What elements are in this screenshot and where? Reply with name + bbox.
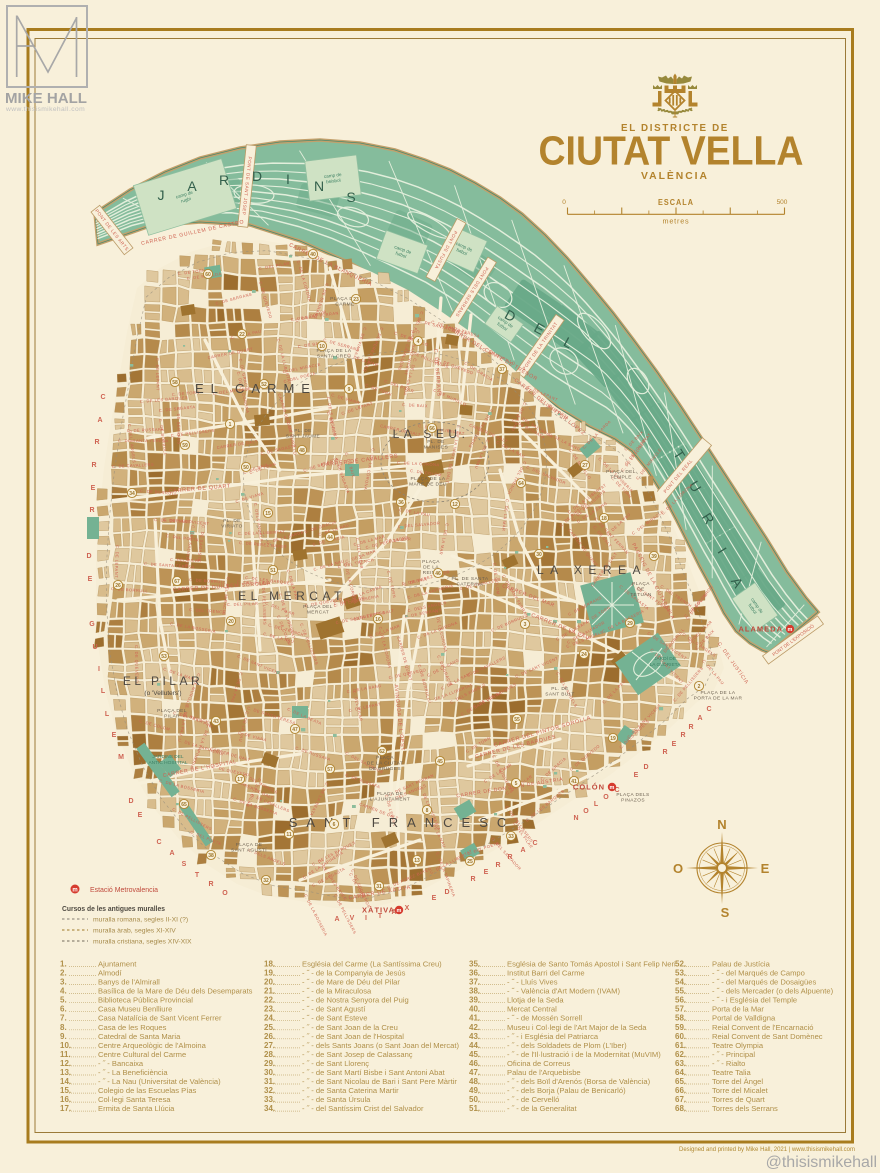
svg-text:- ˝ - de l'Il·lustració i: - ˝ - de l'Il·lustració i de la Modernit…	[507, 1050, 661, 1059]
svg-text:39: 39	[651, 554, 657, 560]
svg-text:PLAÇA: PLAÇA	[632, 581, 650, 587]
svg-text:6: 6	[333, 822, 336, 828]
svg-text:m: m	[397, 908, 402, 914]
svg-text:29: 29	[627, 621, 633, 627]
svg-text:I: I	[365, 915, 367, 922]
svg-text:A: A	[520, 847, 525, 854]
svg-text:Catedral de Santa Maria: Catedral de Santa Maria	[98, 1032, 181, 1041]
svg-text:- ˝ - La Nau (Universitat: - ˝ - La Nau (Universitat de València)	[98, 1077, 221, 1086]
svg-text:LA XEREA: LA XEREA	[537, 563, 647, 577]
svg-text:E: E	[484, 869, 489, 876]
svg-text:- ˝ - de Mare de Déu del: - ˝ - de Mare de Déu del Pilar	[302, 978, 400, 987]
svg-text:66.: 66.	[675, 1086, 686, 1095]
svg-text:19: 19	[610, 736, 616, 742]
svg-text:O: O	[673, 861, 683, 876]
svg-text:31: 31	[376, 884, 382, 890]
svg-text:5.: 5.	[60, 996, 67, 1005]
svg-text:55: 55	[514, 717, 520, 723]
svg-text:50.: 50.	[469, 1095, 480, 1104]
svg-text:MERCAT: MERCAT	[307, 609, 329, 615]
svg-text:SANT JAUME: SANT JAUME	[286, 433, 320, 439]
svg-text:Casa de les Roques: Casa de les Roques	[98, 1023, 167, 1032]
svg-text:63.: 63.	[675, 1059, 686, 1068]
svg-text:R: R	[94, 439, 99, 446]
svg-text:Designed and printed by Mike H: Designed and printed by Mike Hall, 2021 …	[679, 1147, 855, 1153]
svg-text:LA GLORIETA: LA GLORIETA	[650, 662, 682, 668]
svg-text:46.: 46.	[469, 1059, 480, 1068]
svg-text:A: A	[697, 715, 702, 722]
svg-text:D: D	[643, 764, 648, 771]
svg-text:- ˝ - de la Miraculosa: - ˝ - de la Miraculosa	[302, 987, 372, 996]
svg-text:- ˝ - i Església del Patr: - ˝ - i Església del Patriarca	[507, 1032, 599, 1041]
svg-text:40.: 40.	[469, 1005, 480, 1014]
svg-text:PL. DE: PL. DE	[294, 428, 312, 434]
svg-text:Palau de Justícia: Palau de Justícia	[712, 960, 771, 969]
svg-text:C. DE SERRANS: C. DE SERRANS	[176, 407, 182, 445]
svg-text:EL MERCAT: EL MERCAT	[238, 589, 346, 603]
svg-text:PL. DE SANTA: PL. DE SANTA	[452, 576, 489, 582]
svg-text:C: C	[100, 394, 105, 401]
svg-text:66: 66	[429, 426, 435, 432]
svg-text:Basílica de la Mare de Déu del: Basílica de la Mare de Déu dels Desempar…	[98, 987, 253, 996]
svg-text:C: C	[532, 840, 537, 847]
svg-text:- ˝ - Principal: - ˝ - Principal	[712, 1050, 755, 1059]
svg-text:0: 0	[562, 199, 566, 206]
svg-text:52: 52	[261, 382, 267, 388]
svg-text:- ˝ - i Església del Temp: - ˝ - i Església del Temple	[712, 996, 797, 1005]
svg-text:56.: 56.	[675, 996, 686, 1005]
svg-text:A: A	[169, 850, 174, 857]
svg-text:Reial Convent de Sant Domènec: Reial Convent de Sant Domènec	[712, 1032, 823, 1041]
svg-text:MIKE HALL: MIKE HALL	[5, 91, 87, 107]
svg-text:27.: 27.	[264, 1041, 275, 1050]
svg-text:34.: 34.	[264, 1104, 275, 1113]
svg-text:PLAÇA DE LA: PLAÇA DE LA	[700, 690, 735, 696]
svg-text:45: 45	[437, 759, 443, 765]
svg-text:ALAMEDA: ALAMEDA	[739, 625, 784, 634]
svg-text:- ˝ - dels Borja (Palau d: - ˝ - dels Borja (Palau de Benicarló)	[507, 1086, 626, 1095]
svg-text:PLAÇA DE: PLAÇA DE	[236, 842, 263, 848]
svg-text:muralla cristiana, segles XIV-: muralla cristiana, segles XIV-XIX	[93, 939, 192, 946]
svg-text:2.: 2.	[60, 969, 67, 978]
svg-text:PLAÇA DEL: PLAÇA DEL	[303, 604, 333, 610]
svg-text:51.: 51.	[469, 1104, 480, 1113]
svg-text:muralla àrab, segles XI-XIV: muralla àrab, segles XI-XIV	[93, 928, 176, 935]
svg-text:R: R	[219, 172, 229, 188]
svg-text:- ˝ - València d'Art Mode: - ˝ - València d'Art Modern (IVAM)	[507, 987, 620, 996]
svg-text:17: 17	[237, 777, 243, 783]
svg-text:C: C	[156, 839, 161, 846]
svg-text:- ˝ - Lluís Vives: - ˝ - Lluís Vives	[507, 978, 558, 987]
svg-text:Col·legi Santa Teresa: Col·legi Santa Teresa	[98, 1095, 171, 1104]
svg-text:36: 36	[398, 500, 404, 506]
svg-text:R: R	[89, 507, 94, 514]
svg-text:S: S	[346, 189, 355, 205]
svg-text:- ˝ - de Santa Caterina M: - ˝ - de Santa Caterina Martir	[302, 1086, 399, 1095]
svg-text:- ˝ - La Beneficiència: - ˝ - La Beneficiència	[98, 1068, 168, 1077]
svg-text:- ˝ - de Sant Nicolau de: - ˝ - de Sant Nicolau de Bari i Sant Per…	[302, 1077, 457, 1086]
svg-text:N: N	[717, 817, 726, 832]
svg-text:- ˝ - Rialto: - ˝ - Rialto	[712, 1059, 745, 1068]
svg-text:18: 18	[601, 516, 607, 522]
svg-text:N: N	[573, 815, 578, 822]
svg-text:42.: 42.	[469, 1023, 480, 1032]
svg-text:60: 60	[205, 272, 211, 278]
svg-text:16: 16	[375, 617, 381, 623]
svg-text:Mercat Central: Mercat Central	[507, 1005, 557, 1014]
svg-text:I: I	[98, 666, 100, 673]
svg-text:Colegio de las Escuelas Pías: Colegio de las Escuelas Pías	[98, 1086, 197, 1095]
svg-text:8.: 8.	[60, 1023, 67, 1032]
svg-text:Torre del Micalet: Torre del Micalet	[712, 1086, 769, 1095]
svg-text:Teatre Olympia: Teatre Olympia	[712, 1041, 764, 1050]
svg-text:4.: 4.	[60, 987, 67, 996]
svg-text:22.: 22.	[264, 996, 275, 1005]
svg-text:C. DE SANTA TERESA: C. DE SANTA TERESA	[118, 438, 169, 443]
svg-text:R: R	[680, 732, 685, 739]
svg-text:D: D	[86, 553, 91, 560]
svg-text:Institut Barri del Carme: Institut Barri del Carme	[507, 969, 585, 978]
svg-text:- ˝ - de Sant Esteve: - ˝ - de Sant Esteve	[302, 1014, 367, 1023]
svg-text:11: 11	[286, 832, 292, 838]
svg-text:1: 1	[229, 422, 232, 428]
svg-text:54.: 54.	[675, 978, 686, 987]
svg-text:CIUTAT VELLA: CIUTAT VELLA	[539, 128, 804, 174]
svg-text:24: 24	[581, 652, 587, 658]
svg-text:- ˝ - del Santíssim Crist: - ˝ - del Santíssim Crist del Salvador	[302, 1104, 424, 1113]
svg-text:31.: 31.	[264, 1077, 275, 1086]
svg-text:T: T	[195, 872, 200, 879]
svg-text:47.: 47.	[469, 1068, 480, 1077]
svg-text:A: A	[334, 916, 339, 923]
svg-text:Portal de Valldigna: Portal de Valldigna	[712, 1014, 776, 1023]
svg-text:20: 20	[228, 619, 234, 625]
svg-text:Torre del Àngel: Torre del Àngel	[712, 1077, 763, 1086]
svg-text:Casa Natalícia de Sant Vicent: Casa Natalícia de Sant Vicent Ferrer	[98, 1014, 222, 1023]
svg-text:R: R	[507, 854, 512, 861]
svg-text:MANISES: MANISES	[424, 444, 448, 450]
svg-text:m: m	[72, 888, 77, 894]
svg-text:26.: 26.	[264, 1032, 275, 1041]
svg-text:1.: 1.	[60, 960, 67, 969]
svg-text:O: O	[603, 794, 609, 801]
svg-text:m: m	[788, 627, 793, 633]
svg-text:Casa Museu Benlliure: Casa Museu Benlliure	[98, 1005, 172, 1014]
svg-text:Llotja de la Seda: Llotja de la Seda	[507, 996, 564, 1005]
svg-text:Museu i Col·legi de l'Art Majo: Museu i Col·legi de l'Art Major de la Se…	[507, 1023, 647, 1032]
svg-text:PORTA DE LA MAR: PORTA DE LA MAR	[694, 695, 743, 701]
svg-text:MARE DE DÉU: MARE DE DÉU	[409, 480, 447, 487]
svg-text:22: 22	[239, 332, 245, 338]
svg-text:EL CARME: EL CARME	[195, 381, 317, 396]
svg-text:ESCALA: ESCALA	[658, 197, 694, 207]
svg-text:E: E	[88, 576, 93, 583]
svg-text:VIRIATO: VIRIATO	[221, 523, 243, 529]
svg-text:32.: 32.	[264, 1086, 275, 1095]
svg-text:2: 2	[698, 684, 701, 690]
svg-text:TEMPLE: TEMPLE	[610, 474, 632, 480]
svg-text:27: 27	[582, 463, 588, 469]
svg-text:17.: 17.	[60, 1104, 71, 1113]
svg-text:30: 30	[536, 552, 542, 558]
svg-text:58: 58	[172, 380, 178, 386]
svg-text:R: R	[662, 749, 667, 756]
svg-text:www.thisismikehall.com: www.thisismikehall.com	[5, 106, 85, 113]
svg-text:- ˝ - dels Soldadets de P: - ˝ - dels Soldadets de Plom (L'Iber)	[507, 1041, 627, 1050]
svg-text:15: 15	[265, 511, 271, 517]
svg-text:(o 'Velluters'): (o 'Velluters')	[144, 690, 181, 697]
svg-text:PL. DE: PL. DE	[427, 439, 445, 445]
svg-text:R: R	[688, 724, 693, 731]
svg-text:26: 26	[115, 583, 121, 589]
svg-text:59.: 59.	[675, 1023, 686, 1032]
svg-text:- ˝ - dels Boïl d'Arenós: - ˝ - dels Boïl d'Arenós (Borsa de Valèn…	[507, 1077, 651, 1086]
svg-text:23.: 23.	[264, 1005, 275, 1014]
svg-text:- ˝ - del Marqués de Dosa: - ˝ - del Marqués de Dosaigües	[712, 978, 816, 987]
svg-text:32: 32	[263, 878, 269, 884]
svg-text:21.: 21.	[264, 987, 275, 996]
svg-text:9.: 9.	[60, 1032, 67, 1041]
svg-text:12: 12	[452, 502, 458, 508]
svg-text:48.: 48.	[469, 1077, 480, 1086]
svg-text:43: 43	[213, 719, 219, 725]
svg-text:14.: 14.	[60, 1077, 71, 1086]
svg-text:41.: 41.	[469, 1014, 480, 1023]
svg-text:- ˝ - de Sant Agustí: - ˝ - de Sant Agustí	[302, 1005, 366, 1014]
svg-text:39.: 39.	[469, 996, 480, 1005]
svg-text:Torres de Quart: Torres de Quart	[712, 1095, 766, 1104]
svg-text:U: U	[92, 644, 97, 651]
svg-text:PL. DE: PL. DE	[551, 686, 569, 692]
svg-text:- ˝ - de Cervelló: - ˝ - de Cervelló	[507, 1095, 559, 1104]
svg-text:R: R	[495, 862, 500, 869]
svg-text:12.: 12.	[60, 1059, 71, 1068]
svg-text:Banys de l'Almirall: Banys de l'Almirall	[98, 978, 160, 987]
svg-text:19.: 19.	[264, 969, 275, 978]
svg-text:EL PILAR: EL PILAR	[123, 674, 203, 688]
svg-text:67: 67	[174, 579, 180, 585]
svg-text:50: 50	[243, 465, 249, 471]
svg-text:67.: 67.	[675, 1095, 686, 1104]
svg-text:S: S	[721, 905, 730, 920]
svg-text:64.: 64.	[675, 1068, 686, 1077]
svg-text:24.: 24.	[264, 1014, 275, 1023]
svg-text:60.: 60.	[675, 1032, 686, 1041]
svg-text:37.: 37.	[469, 978, 480, 987]
svg-text:S: S	[182, 861, 187, 868]
svg-text:49.: 49.	[469, 1086, 480, 1095]
svg-text:M: M	[118, 754, 124, 761]
svg-text:D: D	[128, 798, 133, 805]
svg-text:48: 48	[299, 448, 305, 454]
svg-text:PLAÇA: PLAÇA	[422, 559, 440, 565]
svg-text:C. DE LEPANT: C. DE LEPANT	[155, 358, 161, 391]
svg-text:- ˝ - de Mossén Sorrell: - ˝ - de Mossén Sorrell	[507, 1014, 582, 1023]
svg-text:PLAÇA: PLAÇA	[376, 755, 394, 761]
svg-text:58.: 58.	[675, 1014, 686, 1023]
svg-text:59: 59	[182, 443, 188, 449]
svg-text:- ˝ - de Sant Josep de Ca: - ˝ - de Sant Josep de Calassanç	[302, 1050, 413, 1059]
svg-text:DE: DE	[637, 586, 644, 592]
svg-text:- ˝ - de Sant Llorenç: - ˝ - de Sant Llorenç	[302, 1059, 369, 1068]
svg-text:44.: 44.	[469, 1041, 480, 1050]
svg-text:- ˝ - de Sant Joan de l'H: - ˝ - de Sant Joan de l'Hospital	[302, 1032, 404, 1041]
svg-text:35.: 35.	[469, 960, 480, 969]
svg-text:G: G	[89, 621, 95, 628]
svg-text:E: E	[112, 732, 117, 739]
svg-text:23: 23	[353, 297, 359, 303]
svg-text:muralla romana, segles II-XI (: muralla romana, segles II-XI (?)	[93, 917, 188, 924]
svg-text:DE BRUGES: DE BRUGES	[369, 766, 401, 772]
svg-text:- ˝ - dels Mercader (o de: - ˝ - dels Mercader (o dels Alpuente)	[712, 987, 834, 996]
svg-text:O: O	[222, 890, 228, 897]
svg-text:L'AJUNTAMENT: L'AJUNTAMENT	[370, 796, 410, 802]
svg-text:SANT BULT: SANT BULT	[545, 691, 575, 697]
svg-text:E: E	[432, 895, 437, 902]
svg-text:65: 65	[181, 802, 187, 808]
svg-text:3.: 3.	[60, 978, 67, 987]
svg-text:57.: 57.	[675, 1005, 686, 1014]
svg-text:E: E	[91, 485, 96, 492]
svg-text:Porta de la Mar: Porta de la Mar	[712, 1005, 764, 1014]
svg-text:SANT FRANCESC: SANT FRANCESC	[289, 815, 516, 830]
svg-text:A: A	[187, 178, 197, 194]
svg-text:37: 37	[499, 367, 505, 373]
svg-text:10: 10	[319, 344, 325, 350]
svg-text:6.: 6.	[60, 1005, 67, 1014]
svg-text:ANTIC HOSPITAL: ANTIC HOSPITAL	[148, 760, 187, 766]
svg-text:Palau de l'Arquebisbe: Palau de l'Arquebisbe	[507, 1068, 581, 1077]
svg-text:30.: 30.	[264, 1068, 275, 1077]
svg-text:L: L	[594, 801, 599, 808]
svg-text:18.: 18.	[264, 960, 275, 969]
svg-text:E: E	[138, 812, 143, 819]
svg-text:3: 3	[524, 622, 527, 628]
svg-text:15.: 15.	[60, 1086, 71, 1095]
svg-text:52.: 52.	[675, 960, 686, 969]
svg-text:51: 51	[270, 568, 276, 574]
svg-text:8: 8	[426, 808, 429, 814]
svg-text:J: J	[158, 187, 165, 203]
svg-text:13: 13	[414, 858, 420, 864]
svg-text:38.: 38.	[469, 987, 480, 996]
svg-text:Església de Santo Tomás Aposto: Església de Santo Tomás Apostol i Sant F…	[507, 960, 676, 969]
svg-text:36.: 36.	[469, 969, 480, 978]
svg-text:O: O	[583, 808, 589, 815]
svg-text:- ˝ - de Santa Úrsula: - ˝ - de Santa Úrsula	[302, 1095, 371, 1104]
svg-text:Ermita de Santa Llúcia: Ermita de Santa Llúcia	[98, 1104, 175, 1113]
svg-text:- ˝ - de la Companyia de: - ˝ - de la Companyia de Jesús	[302, 969, 406, 978]
svg-text:SANT AGUSTÍ: SANT AGUSTÍ	[231, 846, 267, 853]
svg-text:E: E	[634, 772, 639, 779]
svg-text:33.: 33.	[264, 1095, 275, 1104]
svg-text:- ˝ - de Sant Joan de la: - ˝ - de Sant Joan de la Creu	[302, 1023, 398, 1032]
svg-text:47: 47	[292, 727, 298, 733]
svg-text:D: D	[444, 889, 449, 896]
svg-text:PLAÇA DELS: PLAÇA DELS	[616, 792, 649, 798]
svg-text:PINAZOS: PINAZOS	[621, 797, 645, 803]
svg-text:Centre Arqueològic de l'Almoin: Centre Arqueològic de l'Almoina	[98, 1041, 207, 1050]
svg-text:20.: 20.	[264, 978, 275, 987]
svg-text:53: 53	[161, 654, 167, 660]
svg-text:40: 40	[310, 252, 316, 258]
svg-text:44: 44	[327, 535, 333, 541]
svg-text:16.: 16.	[60, 1095, 71, 1104]
svg-text:DE LA CIUTAT: DE LA CIUTAT	[367, 760, 403, 766]
svg-text:PILAR: PILAR	[164, 713, 180, 719]
svg-text:CARME: CARME	[335, 301, 354, 307]
svg-text:COLÓN: COLÓN	[573, 783, 605, 792]
svg-text:@thisismikehall: @thisismikehall	[766, 1154, 877, 1171]
svg-text:L: L	[105, 711, 110, 718]
svg-text:Torres dels Serrans: Torres dels Serrans	[712, 1104, 778, 1113]
svg-text:E: E	[672, 741, 677, 748]
svg-text:- ˝ - del Marqués de Camp: - ˝ - del Marqués de Campo	[712, 969, 805, 978]
svg-text:Oficina de Correus: Oficina de Correus	[507, 1059, 571, 1068]
svg-text:43.: 43.	[469, 1032, 480, 1041]
svg-text:X: X	[405, 905, 410, 912]
svg-text:SANTA CREU: SANTA CREU	[317, 353, 351, 359]
svg-text:53.: 53.	[675, 969, 686, 978]
svg-text:JARDINS DEL: JARDINS DEL	[152, 754, 184, 760]
svg-text:Almodí: Almodí	[98, 969, 123, 978]
svg-text:9: 9	[348, 387, 351, 393]
svg-text:VALÈNCIA: VALÈNCIA	[641, 169, 709, 182]
svg-text:55.: 55.	[675, 987, 686, 996]
svg-text:A: A	[97, 417, 102, 424]
svg-text:D: D	[252, 168, 262, 184]
svg-text:TETUAN: TETUAN	[630, 592, 652, 598]
svg-text:500: 500	[777, 199, 788, 206]
svg-text:I: I	[286, 171, 290, 187]
svg-text:38: 38	[208, 853, 214, 859]
svg-text:XÀTIVA: XÀTIVA	[362, 906, 395, 915]
svg-text:R: R	[208, 881, 213, 888]
svg-text:68.: 68.	[675, 1104, 686, 1113]
svg-text:Cursos de les antigues muralle: Cursos de les antigues muralles	[62, 904, 165, 913]
svg-text:JARDÍ DE: JARDÍ DE	[654, 655, 676, 662]
svg-text:13.: 13.	[60, 1068, 71, 1077]
svg-text:C: C	[706, 706, 711, 713]
svg-text:46: 46	[435, 571, 441, 577]
svg-text:Església del Carme (La Santíss: Església del Carme (La Santíssima Creu)	[302, 960, 442, 969]
svg-text:CATERINA: CATERINA	[456, 581, 483, 587]
svg-text:- ˝ - de la Generalitat: - ˝ - de la Generalitat	[507, 1104, 578, 1113]
svg-text:- ˝ - de Sant Martí Bisbe: - ˝ - de Sant Martí Bisbe i Sant Antoni …	[302, 1068, 446, 1077]
svg-text:Biblioteca Pública Provincial: Biblioteca Pública Provincial	[98, 996, 193, 1005]
svg-text:L: L	[101, 688, 106, 695]
svg-text:Estació Metrovalencia: Estació Metrovalencia	[90, 885, 159, 894]
svg-text:65.: 65.	[675, 1077, 686, 1086]
svg-text:- ˝ - dels Sants Joans (o: - ˝ - dels Sants Joans (o Sant Joan del …	[302, 1041, 459, 1050]
svg-text:Reial Convent de l'Encarnació: Reial Convent de l'Encarnació	[712, 1023, 814, 1032]
svg-text:64: 64	[518, 481, 524, 487]
svg-text:PLAÇA DE: PLAÇA DE	[377, 791, 404, 797]
svg-text:- ˝ - de Nostra Senyora d: - ˝ - de Nostra Senyora del Puig	[302, 996, 409, 1005]
svg-text:62.: 62.	[675, 1050, 686, 1059]
svg-text:V: V	[350, 915, 355, 922]
svg-text:metres: metres	[663, 217, 690, 226]
svg-text:7.: 7.	[60, 1014, 67, 1023]
svg-text:62: 62	[379, 749, 385, 755]
svg-text:5: 5	[515, 781, 518, 787]
svg-text:Centre Cultural del Carme: Centre Cultural del Carme	[98, 1050, 186, 1059]
svg-text:- ˝ - Bancaixa: - ˝ - Bancaixa	[98, 1059, 144, 1068]
svg-text:N: N	[314, 178, 324, 194]
svg-text:29.: 29.	[264, 1059, 275, 1068]
svg-text:10.: 10.	[60, 1041, 71, 1050]
svg-text:25: 25	[467, 859, 473, 865]
